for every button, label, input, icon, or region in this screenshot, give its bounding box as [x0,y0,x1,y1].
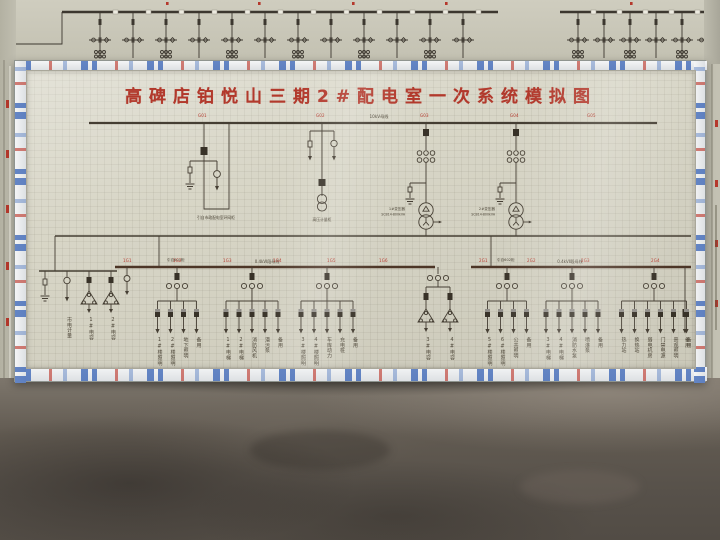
hv-metering-cabinet [308,123,337,211]
transformer-1-symbol [406,123,443,236]
transformer-2-name: 2#变压器 [479,206,495,211]
upper-board-diagram [0,0,720,66]
lv-feeder-groups [155,267,689,334]
hv-metering-label: 高压计量柜 [313,217,332,222]
lv-bus2-label: 0.4kVⅡ段母线 [557,258,582,264]
transformer-1-spec: SCB14-800kVA [381,213,406,217]
board-panel: 高碑店铂悦山三期2#配电室一次系统模拟图 [26,70,696,369]
lv-left-section [39,267,130,313]
photo-scene: 高碑店铂悦山三期2#配电室一次系统模拟图 [0,0,720,540]
floor-stain [250,430,390,470]
lv-bus1-feed-label: 引自601柜 [167,257,185,262]
frame-film-left [15,61,26,383]
mimic-board: 高碑店铂悦山三期2#配电室一次系统模拟图 [14,60,706,382]
lv-run [55,236,691,271]
floor-stain [520,470,640,504]
hv-incoming-label: 引自市政配电室环网柜 [197,215,235,220]
upper-board-strip [0,0,720,66]
lv-bus2-feed-label: 引自602柜 [497,257,515,262]
transformer-2-symbol [496,123,533,236]
hv-section [39,123,691,334]
frame-film-top [15,61,707,70]
hv-incoming-cabinet [186,123,230,209]
transformer-1-name: 1#变压器 [389,206,405,211]
lv-bus1-label: 0.4kVⅠ段母线 [255,258,280,264]
transformer-2-spec: SCB14-800kVA [471,213,496,217]
one-line-diagram: 10kV母线 引自市政配电室环网柜 高压计量柜 1#变压器 SCB14-800k… [27,71,697,370]
lv-capacitor-section [418,267,458,332]
hv-bus-label: 10kV母线 [370,113,390,120]
